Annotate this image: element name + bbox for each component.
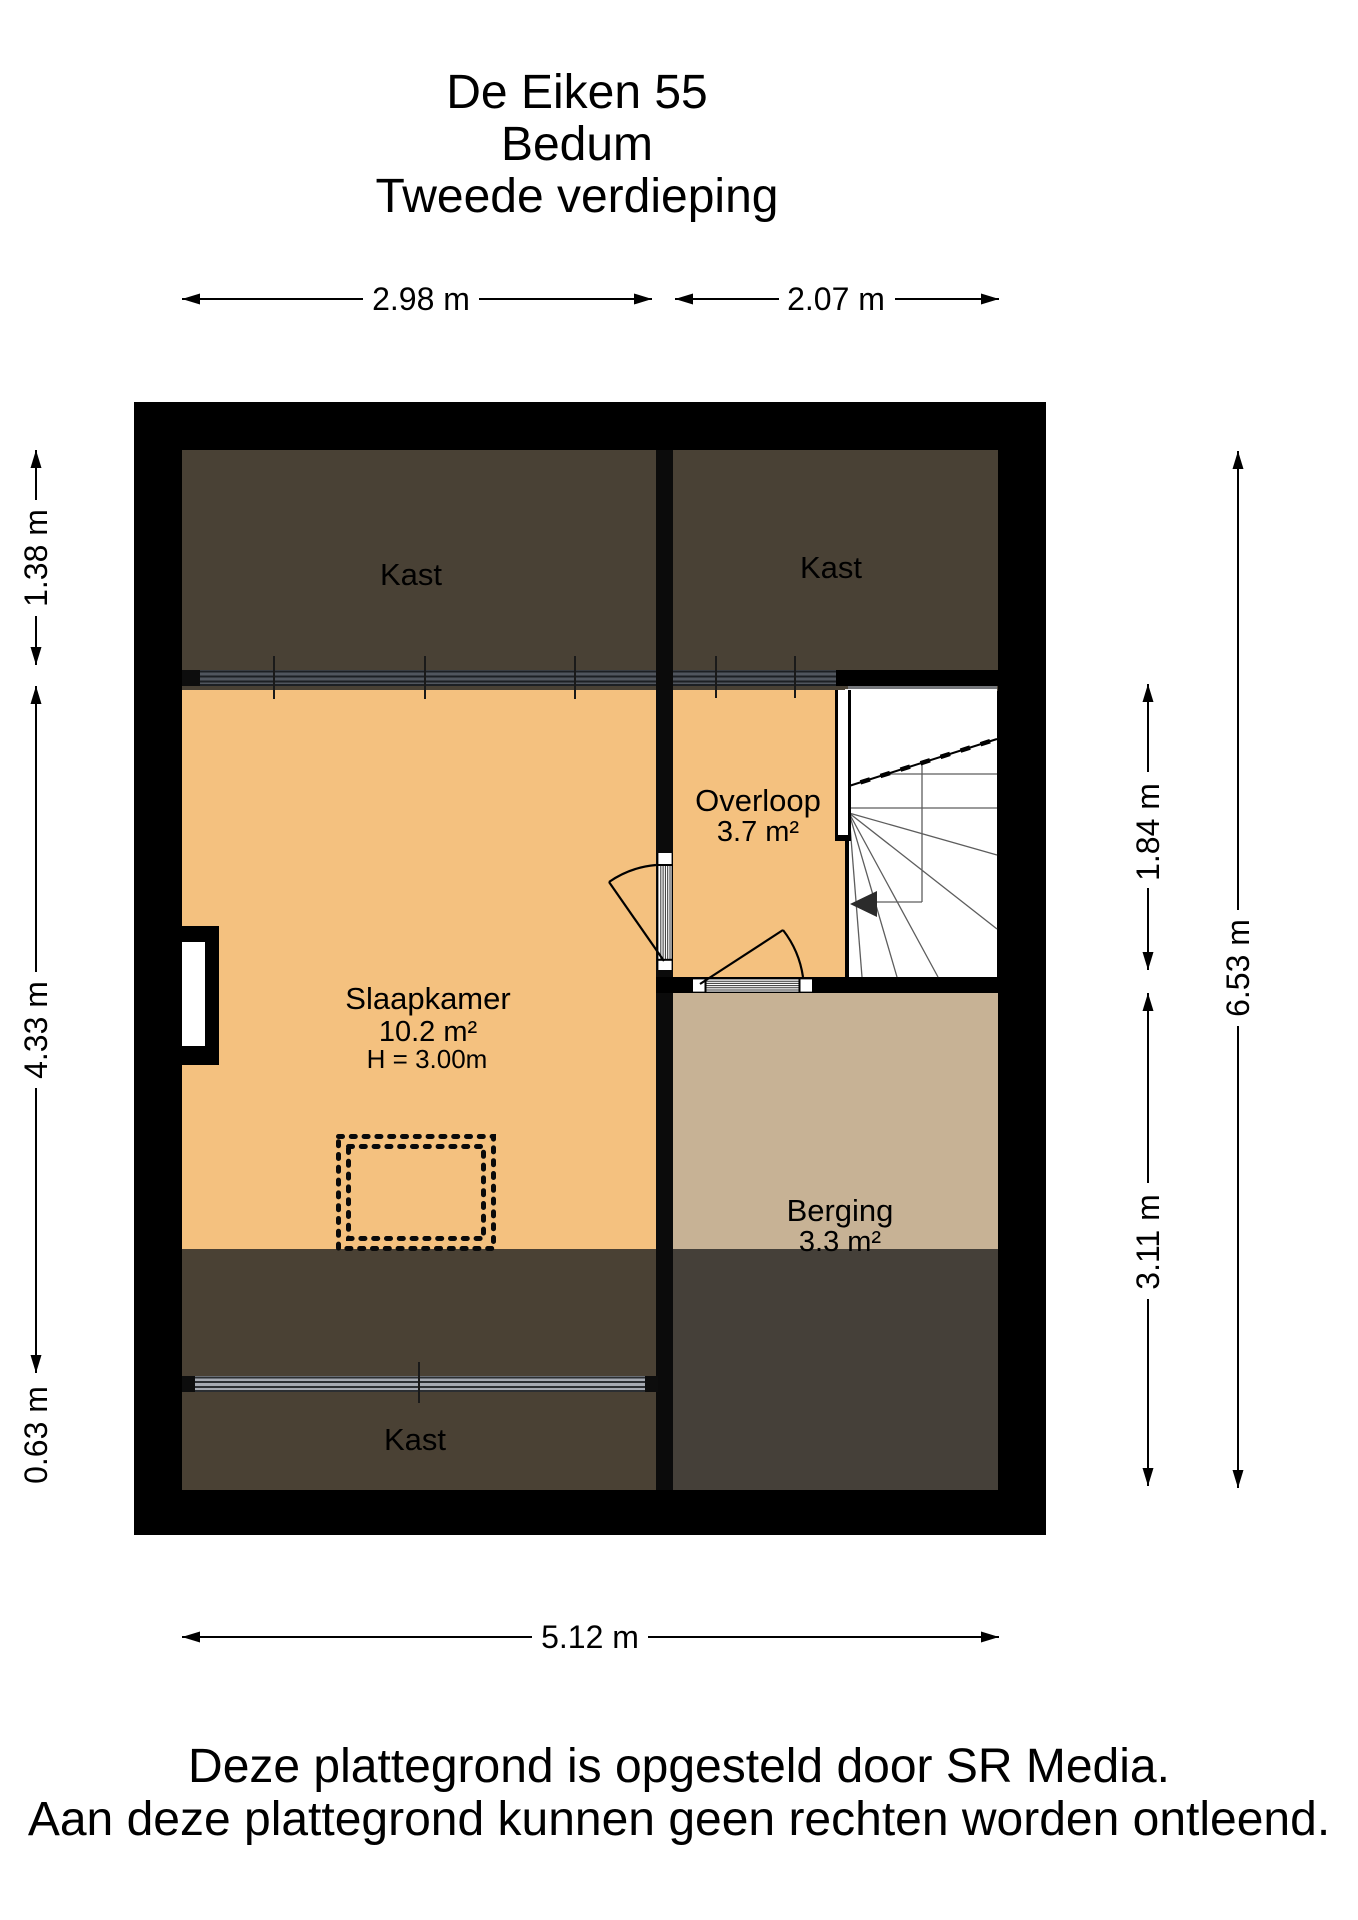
svg-text:Bedum: Bedum: [501, 118, 653, 171]
svg-text:Tweede verdieping: Tweede verdieping: [376, 170, 779, 223]
svg-text:Overloop: Overloop: [695, 783, 821, 818]
svg-text:4.33 m: 4.33 m: [18, 981, 54, 1079]
svg-text:5.12 m: 5.12 m: [541, 1619, 639, 1655]
svg-text:0.63 m: 0.63 m: [18, 1386, 54, 1484]
svg-text:Aan deze plattegrond kunnen ge: Aan deze plattegrond kunnen geen rechten…: [28, 1793, 1330, 1846]
svg-text:Slaapkamer: Slaapkamer: [345, 981, 510, 1016]
svg-text:1.84 m: 1.84 m: [1130, 783, 1166, 881]
svg-text:1.38 m: 1.38 m: [18, 509, 54, 607]
svg-text:6.53 m: 6.53 m: [1220, 919, 1256, 1017]
svg-text:Kast: Kast: [800, 550, 862, 585]
svg-text:2.98 m: 2.98 m: [372, 281, 470, 317]
svg-text:Berging: Berging: [787, 1193, 894, 1228]
svg-text:2.07 m: 2.07 m: [787, 281, 885, 317]
svg-text:Kast: Kast: [384, 1422, 446, 1457]
svg-text:Kast: Kast: [380, 557, 442, 592]
svg-text:3.3 m²: 3.3 m²: [799, 1226, 882, 1258]
svg-text:H = 3.00m: H = 3.00m: [367, 1044, 488, 1074]
svg-text:Deze plattegrond is opgesteld: Deze plattegrond is opgesteld door SR Me…: [188, 1740, 1170, 1793]
svg-text:3.11 m: 3.11 m: [1130, 1194, 1166, 1289]
svg-text:De Eiken 55: De Eiken 55: [446, 66, 708, 119]
svg-text:3.7 m²: 3.7 m²: [717, 816, 800, 848]
